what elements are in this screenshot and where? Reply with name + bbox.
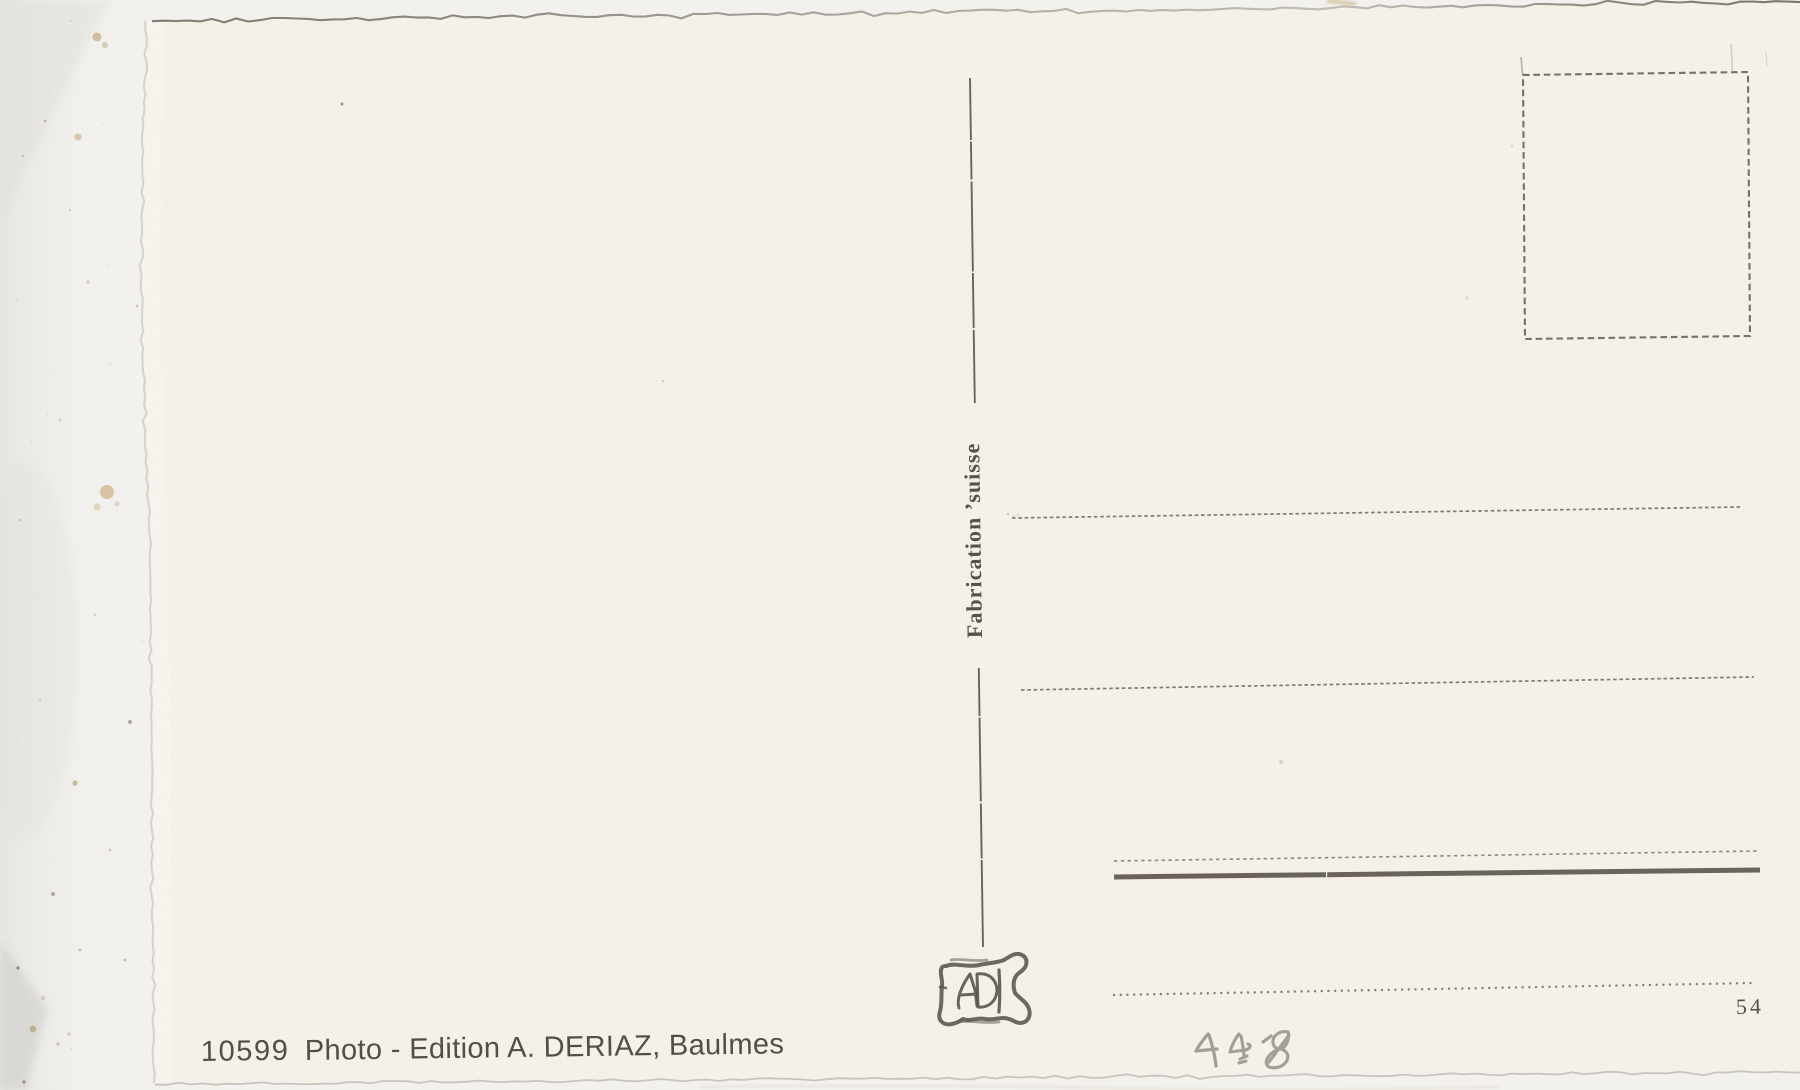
svg-text:54: 54 [1736,994,1764,1019]
svg-text:10599: 10599 [201,1035,288,1068]
svg-text:Fabrication ’suisse: Fabrication ’suisse [959,443,987,638]
svg-text:Photo - Edition A. DERIAZ, Ba: Photo - Edition A. DERIAZ, Baulmes [305,1028,784,1067]
